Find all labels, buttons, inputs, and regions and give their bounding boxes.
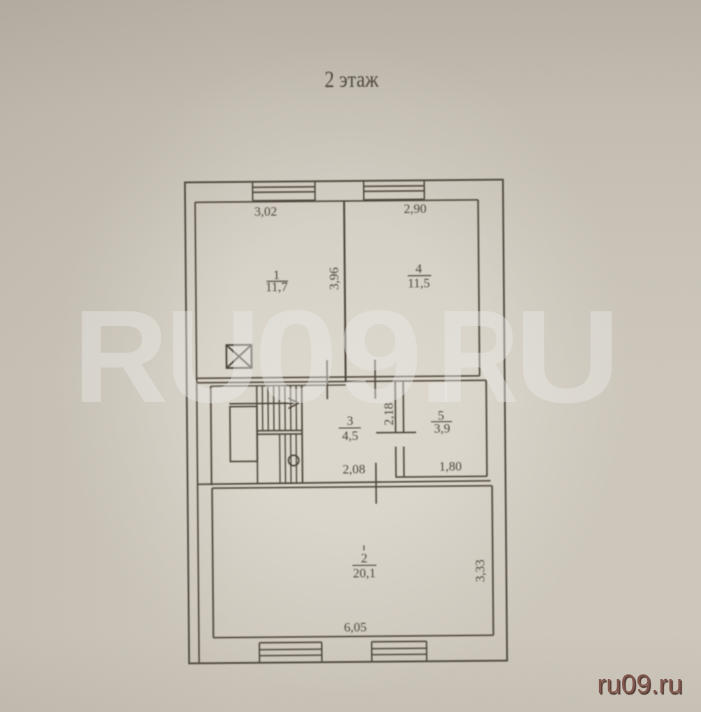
svg-text:2,90: 2,90 — [404, 201, 427, 216]
svg-text:3,02: 3,02 — [254, 204, 277, 219]
svg-text:3,33: 3,33 — [472, 559, 487, 582]
svg-text:1,80: 1,80 — [439, 459, 462, 474]
svg-text:20,1: 20,1 — [353, 565, 376, 580]
svg-text:6,05: 6,05 — [344, 619, 367, 634]
svg-text:4: 4 — [415, 261, 422, 276]
svg-text:2: 2 — [361, 550, 368, 565]
svg-text:2 этаж: 2 этаж — [324, 67, 378, 92]
svg-text:2,08: 2,08 — [342, 461, 365, 476]
